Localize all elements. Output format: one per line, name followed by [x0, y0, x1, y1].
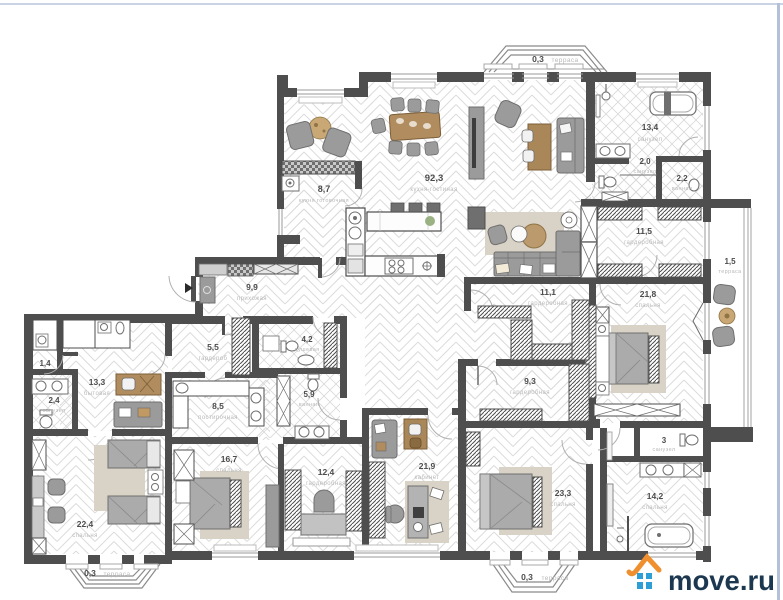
svg-text:гардеробная: гардеробная: [528, 301, 568, 307]
svg-text:спальня: спальня: [550, 502, 576, 508]
svg-text:гардеробная: гардеробная: [510, 390, 550, 396]
svg-text:9,3: 9,3: [524, 376, 536, 386]
svg-text:11,5: 11,5: [636, 226, 652, 236]
svg-text:move.ru: move.ru: [668, 565, 775, 596]
svg-text:кухня-гостиная: кухня-гостиная: [410, 187, 457, 193]
svg-text:ванная: ванная: [299, 402, 319, 408]
svg-text:гардеробная: гардеробная: [624, 240, 664, 246]
svg-text:4,2: 4,2: [301, 335, 313, 344]
svg-text:гардероб: гардероб: [199, 356, 228, 362]
svg-text:2,2: 2,2: [676, 174, 688, 183]
svg-text:12,4: 12,4: [318, 467, 335, 477]
svg-text:1,5: 1,5: [724, 257, 736, 266]
svg-text:санузел: санузел: [43, 408, 66, 414]
svg-text:ванная: ванная: [672, 186, 692, 192]
svg-text:23,3: 23,3: [555, 488, 572, 498]
svg-text:11,1: 11,1: [540, 287, 556, 297]
svg-text:санузел: санузел: [634, 169, 657, 175]
svg-text:терраса: терраса: [103, 571, 130, 578]
svg-text:спальня: спальня: [216, 468, 242, 474]
svg-text:санузел: санузел: [638, 137, 663, 143]
svg-text:прихожая: прихожая: [237, 296, 267, 302]
svg-text:терраса: терраса: [551, 57, 578, 64]
svg-text:бытовая: бытовая: [84, 391, 110, 397]
svg-text:0,3: 0,3: [521, 572, 533, 582]
svg-text:22,4: 22,4: [77, 519, 94, 529]
svg-text:21,9: 21,9: [419, 461, 436, 471]
svg-text:8,7: 8,7: [318, 184, 331, 194]
svg-text:2,4: 2,4: [48, 396, 60, 405]
svg-text:постирочная: постирочная: [198, 415, 238, 421]
svg-text:терраса: терраса: [541, 575, 568, 582]
svg-text:санузел: санузел: [653, 447, 676, 453]
svg-text:0,3: 0,3: [532, 54, 544, 64]
svg-text:спальня: спальня: [635, 303, 661, 309]
svg-text:5,9: 5,9: [303, 390, 315, 399]
svg-text:3: 3: [662, 436, 667, 445]
svg-text:терраса: терраса: [718, 269, 742, 275]
svg-text:2,0: 2,0: [639, 157, 651, 166]
svg-text:душевая: душевая: [294, 347, 319, 353]
svg-text:14,2: 14,2: [647, 491, 664, 501]
svg-text:кабинет: кабинет: [415, 475, 440, 481]
svg-text:13,4: 13,4: [642, 122, 659, 132]
svg-text:спальня: спальня: [72, 533, 98, 539]
svg-text:21,8: 21,8: [640, 289, 657, 299]
svg-text:1,4: 1,4: [39, 359, 51, 368]
svg-text:спальня: спальня: [642, 505, 668, 511]
svg-text:13,3: 13,3: [89, 377, 106, 387]
svg-text:16,7: 16,7: [221, 454, 238, 464]
svg-text:8,5: 8,5: [212, 401, 224, 411]
svg-text:0,3: 0,3: [84, 568, 96, 578]
svg-text:5,5: 5,5: [207, 342, 219, 352]
svg-text:гардеробная: гардеробная: [306, 481, 346, 487]
svg-text:кухня готовочная: кухня готовочная: [299, 198, 349, 204]
svg-text:92,3: 92,3: [425, 173, 444, 184]
svg-text:9,9: 9,9: [246, 282, 258, 292]
